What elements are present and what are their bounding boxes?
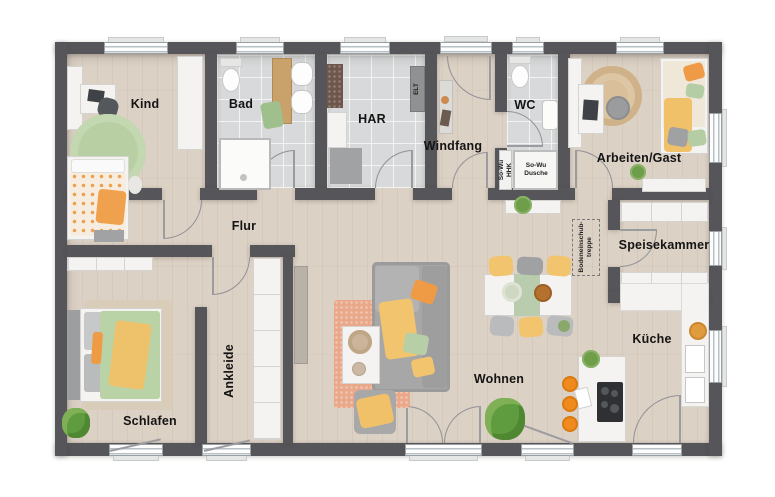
arbeiten-pillow-green	[685, 83, 705, 99]
window-kueche	[709, 330, 722, 383]
wc-toilet	[511, 65, 529, 88]
arbeiten-plant	[630, 164, 646, 180]
outer-wall-left	[55, 42, 67, 456]
wall-flur-top-c	[295, 188, 375, 200]
wall-flur-bottom-b	[250, 245, 295, 257]
label-sowu-dusche-line1: So-Wu	[526, 162, 546, 169]
door-leaf-ankleide	[212, 257, 214, 295]
windfang-item	[441, 96, 449, 104]
room-label-kueche: Küche	[632, 332, 671, 346]
wall-kind-bad	[205, 54, 217, 190]
room-label-har: HAR	[358, 112, 386, 126]
bad-sink-1	[291, 62, 313, 86]
label-sowu-dusche-line2: Dusche	[524, 170, 547, 177]
label-sowu-hhk-line1: So-Wu	[498, 160, 505, 180]
door-leaf-windfang-flur	[486, 152, 488, 188]
har-board	[327, 64, 343, 108]
kueche-island-plant	[582, 350, 600, 368]
bad-shower	[219, 138, 271, 190]
wc-sink	[542, 100, 558, 130]
door-leaf-speisekammer	[620, 229, 657, 231]
wall-flur-top-d	[413, 188, 452, 200]
french-door-leaf-right	[479, 406, 481, 443]
arbeiten-sideboard	[642, 178, 706, 192]
arbeiten-laptop	[582, 100, 598, 121]
wohnen-shoe-shelf	[294, 266, 308, 364]
french-door-leaf-left	[406, 406, 408, 443]
label-sowu-dusche: So-Wu Dusche	[524, 162, 547, 178]
door-leaf-entrance	[489, 56, 491, 100]
room-label-bad: Bad	[229, 97, 253, 111]
wc-toilet-tank	[509, 56, 531, 64]
room-label-speisekammer: Speisekammer	[619, 238, 710, 252]
door-leaf-har	[411, 150, 413, 188]
french-door-sill	[405, 444, 482, 456]
dining-chair-cloth	[558, 320, 570, 332]
bad-towel	[260, 100, 284, 129]
kueche-stool	[562, 376, 578, 392]
kueche-burner	[601, 387, 609, 395]
wall-windfang-wc-upper	[495, 54, 507, 112]
window-bad	[236, 42, 284, 54]
window-schlafen	[109, 444, 163, 456]
kueche-burner	[611, 390, 618, 397]
window-wc	[512, 42, 544, 54]
kueche-fruit-bowl	[689, 322, 707, 340]
arbeiten-pillow-green-2	[687, 129, 707, 147]
har-cabinet	[327, 112, 347, 148]
dining-chair-yellow	[488, 255, 513, 277]
arbeiten-pillow-gray	[667, 126, 690, 147]
room-label-arbeiten: Arbeiten/Gast	[597, 151, 682, 165]
kind-bed-blanket	[95, 189, 126, 226]
kind-bench	[94, 230, 124, 242]
arbeiten-chair	[606, 96, 630, 120]
wall-bad-har	[315, 54, 327, 190]
window-har	[340, 42, 390, 54]
kueche-burner	[610, 404, 619, 413]
kueche-stool	[562, 396, 578, 412]
window-frame-lip	[722, 227, 727, 270]
wohnen-tray	[352, 362, 366, 376]
window-frame-lip	[722, 109, 727, 167]
window-arbeiten-right	[709, 113, 722, 163]
room-label-flur: Flur	[232, 219, 256, 233]
kueche-sink-2	[685, 377, 705, 403]
dining-chair-yellow	[518, 316, 544, 338]
dining-chair-gray	[517, 256, 544, 275]
room-label-wc: WC	[514, 98, 535, 112]
kind-bed-pillow	[71, 159, 125, 173]
label-elt: ELT	[413, 83, 421, 95]
kueche-stool	[562, 416, 578, 432]
room-label-schlafen: Schlafen	[123, 414, 177, 428]
schlafen-headboard	[67, 310, 81, 400]
kueche-burner	[601, 401, 608, 408]
bad-sink-2	[291, 90, 313, 114]
floor-plan: Kind Bad HAR Windfang WC Arbeiten/Gast F…	[0, 0, 775, 497]
kind-wardrobe	[177, 56, 203, 150]
window-frame-lip	[722, 326, 727, 387]
wall-speisekammer-left-lower	[608, 267, 620, 292]
bad-toilet-tank	[220, 58, 242, 67]
kind-slippers	[128, 176, 142, 194]
dining-chair-yellow	[546, 255, 572, 277]
door-leaf-arbeiten	[575, 150, 577, 188]
label-attic-ladder-line1: Bodeneinschub-	[578, 222, 585, 273]
entrance-door-sill	[440, 42, 492, 54]
ankleide-wardrobe	[253, 258, 281, 440]
wohnen-palm-plant	[485, 398, 525, 440]
flur-sideboard-plant	[514, 196, 532, 214]
label-attic-ladder-line2: treppe	[586, 237, 593, 257]
door-leaf-wc	[507, 145, 543, 147]
label-sowu-hhk-line2: HHK	[506, 163, 513, 177]
schlafen-wardrobe	[67, 257, 153, 271]
wohnen-dried-plant	[348, 330, 372, 354]
har-storage-box	[330, 148, 362, 184]
label-attic-ladder: Bodeneinschub- treppe	[578, 222, 594, 273]
door-leaf-bad	[293, 150, 295, 188]
window-wohnen	[521, 444, 574, 456]
room-label-windfang: Windfang	[424, 139, 482, 153]
room-label-wohnen: Wohnen	[474, 372, 524, 386]
wall-schlafen-ankleide	[195, 307, 207, 443]
kueche-door-sill	[632, 444, 682, 456]
dining-flowers	[502, 282, 522, 302]
wall-flur-bottom-a	[67, 245, 212, 257]
window-speisekammer	[709, 231, 722, 266]
schlafen-plant	[62, 408, 90, 438]
wall-ankleide-wohnen	[283, 257, 293, 443]
wall-har-windfang	[425, 54, 437, 190]
bad-toilet	[222, 68, 240, 92]
window-arbeiten-top	[616, 42, 664, 54]
room-label-kind: Kind	[131, 97, 160, 111]
window-kind	[104, 42, 168, 54]
wall-speisekammer-left-upper	[608, 200, 620, 230]
dining-chair-gray	[489, 315, 514, 337]
bad-shower-drain	[240, 174, 247, 181]
speisekammer-shelf-top	[620, 202, 708, 222]
dining-bowl	[534, 284, 552, 302]
wohnen-pillow-green	[402, 332, 429, 356]
label-sowu-hhk: So-Wu HHK	[498, 160, 514, 180]
door-leaf-kind	[163, 200, 165, 239]
kueche-sink-1	[685, 345, 705, 373]
room-label-ankleide: Ankleide	[222, 344, 236, 398]
